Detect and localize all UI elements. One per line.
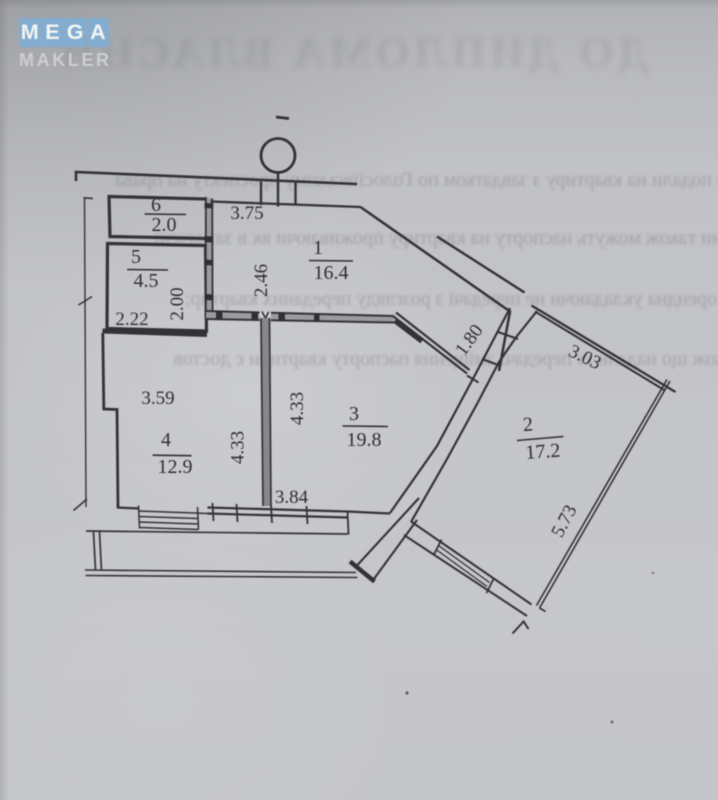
svg-text:3: 3 xyxy=(349,403,359,425)
svg-text:4.5: 4.5 xyxy=(134,270,159,292)
svg-text:1.80: 1.80 xyxy=(451,321,488,360)
svg-text:2: 2 xyxy=(522,413,534,436)
svg-text:2.0: 2.0 xyxy=(152,214,177,236)
svg-text:6: 6 xyxy=(151,194,161,216)
svg-text:2.00: 2.00 xyxy=(167,287,188,320)
svg-text:2.46: 2.46 xyxy=(251,264,272,297)
svg-text:12.9: 12.9 xyxy=(158,456,193,478)
svg-text:4.33: 4.33 xyxy=(228,431,249,464)
svg-text:4.33: 4.33 xyxy=(287,392,308,425)
svg-text:3.75: 3.75 xyxy=(230,203,263,224)
svg-text:2.22: 2.22 xyxy=(115,309,148,330)
svg-text:3.84: 3.84 xyxy=(275,487,309,508)
svg-text:4: 4 xyxy=(161,429,171,451)
svg-text:3.59: 3.59 xyxy=(141,388,174,409)
svg-text:16.4: 16.4 xyxy=(314,262,349,284)
svg-text:1: 1 xyxy=(313,237,323,259)
svg-text:17.2: 17.2 xyxy=(525,440,561,464)
svg-text:5: 5 xyxy=(131,246,141,268)
svg-text:19.8: 19.8 xyxy=(347,429,382,451)
